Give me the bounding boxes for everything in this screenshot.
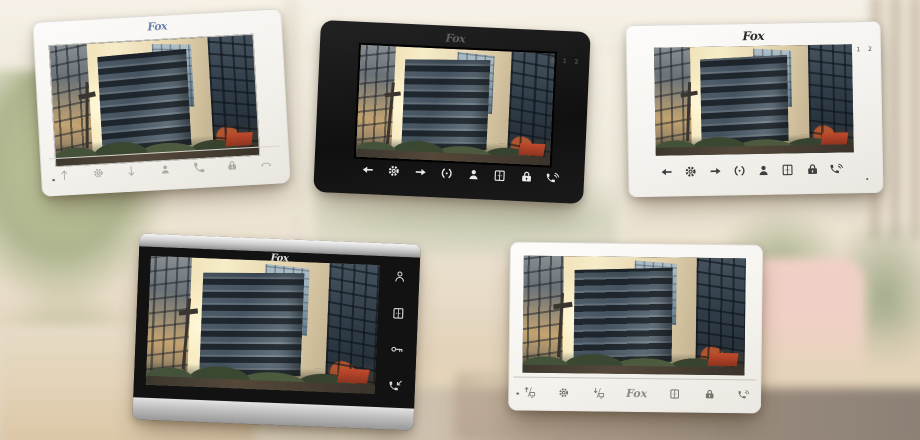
gear-button[interactable] bbox=[683, 163, 698, 178]
door-icon bbox=[390, 305, 406, 321]
brand-logo: Fox bbox=[147, 20, 167, 34]
arrow-right-icon bbox=[708, 163, 723, 178]
door-button[interactable] bbox=[492, 167, 508, 183]
lock-button[interactable] bbox=[703, 387, 716, 400]
gear-button[interactable] bbox=[557, 386, 570, 399]
talk-button[interactable] bbox=[737, 388, 750, 401]
monitor-up-icon bbox=[523, 385, 536, 398]
arrow-left-icon bbox=[659, 164, 674, 179]
camera-view-building bbox=[522, 256, 745, 376]
center-office-building bbox=[700, 55, 789, 146]
video-screen bbox=[356, 45, 555, 166]
arrow-up-button[interactable] bbox=[58, 168, 72, 182]
microphone-hole bbox=[516, 392, 519, 395]
button-row: Fox bbox=[523, 379, 750, 408]
lock-icon bbox=[226, 158, 240, 172]
camera-view-building bbox=[356, 45, 555, 166]
camera-view-building bbox=[654, 44, 854, 155]
talk-button[interactable] bbox=[545, 170, 561, 186]
monitor-up-button[interactable] bbox=[523, 385, 536, 398]
monitor-silver-side-buttons: Fox bbox=[132, 233, 420, 430]
intercom-icon bbox=[732, 163, 747, 178]
red-awning bbox=[708, 353, 739, 366]
door-icon bbox=[668, 387, 681, 400]
lock-button[interactable] bbox=[226, 158, 240, 172]
person-icon bbox=[466, 166, 482, 182]
person-icon bbox=[158, 162, 172, 176]
gear-icon bbox=[683, 163, 698, 178]
person-button[interactable] bbox=[756, 162, 771, 177]
arrow-down-button[interactable] bbox=[125, 164, 139, 178]
person-outline-icon bbox=[392, 269, 408, 285]
person-button[interactable] bbox=[466, 166, 482, 182]
monitor-down-button[interactable] bbox=[592, 386, 605, 399]
person-icon bbox=[756, 162, 771, 177]
intercom-product-collage: Fox Fox 0 1 2 Fox bbox=[0, 0, 920, 440]
arrow-left-button[interactable] bbox=[360, 161, 376, 177]
door-button[interactable] bbox=[390, 305, 406, 321]
intercom-button[interactable] bbox=[732, 163, 747, 178]
gear-icon bbox=[557, 386, 570, 399]
arrow-right-button[interactable] bbox=[708, 163, 723, 178]
brand-logo: Fox bbox=[445, 32, 465, 46]
center-office-building bbox=[401, 59, 490, 149]
hangup-icon bbox=[259, 156, 273, 170]
phone-arrow-icon bbox=[387, 378, 403, 394]
monitor-black-8-buttons: Fox 0 1 2 bbox=[313, 20, 591, 204]
center-office-building bbox=[199, 273, 304, 377]
gear-button[interactable] bbox=[91, 166, 105, 180]
intercom-icon bbox=[439, 165, 455, 181]
phone-button[interactable] bbox=[192, 160, 206, 174]
lock-icon bbox=[518, 169, 534, 185]
camera-view-building bbox=[50, 35, 259, 166]
door-button[interactable] bbox=[668, 387, 681, 400]
phone-arrow-button[interactable] bbox=[387, 378, 403, 394]
talk-icon bbox=[545, 170, 561, 186]
microphone-hole bbox=[52, 179, 55, 182]
video-screen bbox=[522, 256, 745, 376]
microphone-hole bbox=[866, 178, 869, 181]
gear-button[interactable] bbox=[386, 163, 402, 179]
arrow-down-icon bbox=[125, 164, 139, 178]
channel-indicators: 0 1 2 bbox=[845, 46, 875, 54]
lock-button[interactable] bbox=[805, 161, 820, 176]
button-row bbox=[659, 156, 844, 183]
red-awning bbox=[518, 143, 545, 156]
lock-button[interactable] bbox=[518, 169, 534, 185]
lock-icon bbox=[805, 161, 820, 176]
arrow-right-icon bbox=[413, 164, 429, 180]
camera-view-building bbox=[146, 256, 380, 394]
brand-logo: Fox bbox=[626, 386, 647, 399]
lock-icon bbox=[703, 387, 716, 400]
key-icon bbox=[389, 342, 405, 358]
door-icon bbox=[492, 167, 508, 183]
video-screen bbox=[49, 34, 260, 167]
monitor-white-logo-row: Fox bbox=[508, 241, 763, 413]
brand-logo: Fox bbox=[742, 29, 764, 43]
red-awning bbox=[821, 132, 848, 144]
door-button[interactable] bbox=[780, 162, 795, 177]
door-icon bbox=[780, 162, 795, 177]
video-screen bbox=[146, 256, 380, 394]
intercom-button[interactable] bbox=[439, 165, 455, 181]
black-face: Fox bbox=[133, 246, 420, 408]
talk-icon bbox=[829, 161, 844, 176]
key-button[interactable] bbox=[389, 342, 405, 358]
gear-icon bbox=[91, 166, 105, 180]
arrow-left-icon bbox=[360, 161, 376, 177]
person-button[interactable] bbox=[158, 162, 172, 176]
hangup-button[interactable] bbox=[259, 156, 273, 170]
side-button-column bbox=[379, 268, 416, 394]
red-awning bbox=[337, 368, 369, 383]
center-office-building bbox=[574, 267, 673, 363]
person-outline-button[interactable] bbox=[392, 269, 408, 285]
arrow-up-icon bbox=[58, 168, 72, 182]
monitor-white-7-buttons: Fox bbox=[32, 8, 290, 197]
arrow-right-button[interactable] bbox=[413, 164, 429, 180]
phone-icon bbox=[192, 160, 206, 174]
red-awning bbox=[225, 132, 252, 147]
monitor-white-8-buttons: Fox 0 1 2 bbox=[626, 21, 884, 197]
gear-icon bbox=[386, 163, 402, 179]
street-level bbox=[522, 364, 744, 375]
channel-indicators: 0 1 2 bbox=[551, 57, 582, 65]
video-screen bbox=[654, 44, 854, 155]
talk-button[interactable] bbox=[829, 161, 844, 176]
talk-icon bbox=[737, 388, 750, 401]
arrow-left-button[interactable] bbox=[659, 164, 674, 179]
monitor-down-icon bbox=[592, 386, 605, 399]
